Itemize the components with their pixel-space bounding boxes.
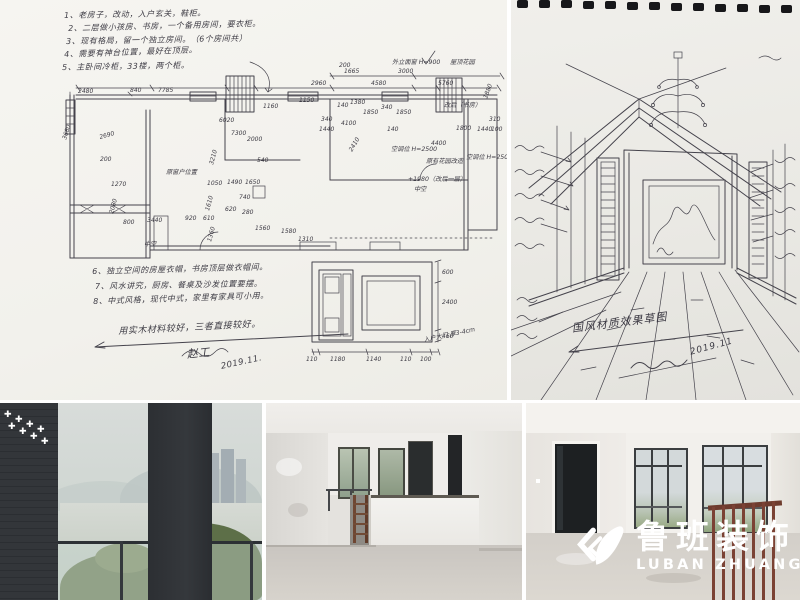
dimension-label: 1490: [227, 179, 242, 186]
logo-text-block: 鲁班装饰 LUBAN ZHUANGSHI: [636, 519, 800, 573]
garden-label: 原有花园改造: [426, 157, 464, 165]
brick-wall: [0, 403, 58, 600]
dimension-label: 800: [123, 219, 135, 226]
sparkle-decal: ✚: [41, 438, 49, 447]
sparkle-decal: ✚: [26, 421, 34, 430]
leaf-logo-icon: [576, 521, 626, 571]
dimension-label: 340: [321, 116, 333, 123]
level-label: +1980（改后一层）: [408, 175, 466, 183]
city-tower: [236, 459, 246, 505]
dimension-label: 280: [242, 209, 254, 216]
dimension-label: 1610: [204, 195, 215, 212]
perspective-drawing: [511, 0, 800, 400]
dimension-label: 1310: [298, 236, 313, 243]
logo-name-english: LUBAN ZHUANGSHI: [636, 557, 800, 573]
half-wall: [371, 495, 479, 551]
facade-label: 外立面窗 H=900: [392, 58, 440, 66]
spiral-binding: [517, 0, 792, 13]
dimension-label: 610: [203, 215, 215, 222]
dimension-label: 7300: [231, 130, 246, 137]
dimension-label: 2690: [99, 130, 116, 141]
designer-signature: 赵工: [186, 344, 211, 362]
sparkle-decal: ✚: [19, 428, 27, 437]
ladder-rung: [353, 533, 368, 535]
railing-post: [250, 541, 253, 600]
dimension-label: 6020: [219, 117, 234, 124]
window-mullion: [667, 450, 669, 523]
dimension-label: 140: [337, 102, 349, 109]
dimension-label: 1880: [482, 83, 494, 100]
dimension-label: 340: [381, 104, 393, 111]
door-depth: [557, 446, 563, 530]
dimension-label: 2960: [311, 80, 326, 87]
dimension-label: 920: [185, 215, 197, 222]
signature-strokes: [95, 334, 348, 357]
dimension-label: 1050: [207, 180, 222, 187]
dimension-label: 1160: [263, 103, 278, 110]
dimension-label: 1440: [319, 126, 334, 133]
feature-wall-and-artwork: [624, 150, 737, 270]
dimension-label: 1150: [299, 97, 314, 104]
note-line: 5、主卧间冷柜，33楼，两个柜。: [62, 60, 189, 73]
dimension-label: 2080: [108, 198, 119, 215]
sparkle-decal: ✚: [37, 426, 45, 435]
wood-floor: [511, 270, 799, 400]
switch-box: [536, 479, 540, 483]
railing-post: [120, 541, 123, 600]
dimension-label: 1270: [111, 181, 126, 188]
sparkle-decal: ✚: [4, 411, 12, 420]
city-tower: [221, 449, 234, 505]
study-label: 改后（书房）: [444, 101, 481, 109]
dimension-label: 100: [420, 356, 432, 363]
dimension-label: 2000: [247, 136, 262, 143]
perspective-sketch-panel: 国风材质效果草图 2019.11: [511, 0, 800, 400]
dimension-label: 600: [442, 269, 454, 276]
company-logo: 鲁班装饰 LUBAN ZHUANGSHI: [576, 519, 800, 573]
window-mullion: [651, 450, 653, 523]
floor-shadow-line: [266, 545, 376, 547]
right-wall-panels: [737, 144, 796, 304]
dimension-label: 110: [306, 356, 318, 363]
dimension-label: 840: [130, 87, 142, 94]
dimension-label: 1850: [363, 109, 378, 116]
wall-patch: [276, 458, 302, 476]
dark-doorway: [408, 441, 433, 497]
ceiling-lines: [529, 64, 781, 206]
back-window: [378, 448, 405, 499]
window-transom: [636, 465, 682, 467]
collage: 2480 840 7785 1665 3000 2960 4580 5760 2…: [0, 0, 800, 600]
dimension-label: 1800: [456, 125, 471, 132]
wall-patch: [288, 503, 308, 517]
dimension-label: 2480: [78, 88, 93, 95]
dimension-label: 1180: [330, 356, 345, 363]
dimension-label: 1580: [281, 228, 296, 235]
ladder-rung: [353, 503, 368, 505]
logo-name-chinese: 鲁班装饰: [636, 519, 800, 555]
photo-balcony-view: ✚ ✚ ✚ ✚ ✚ ✚ ✚ ✚: [0, 403, 262, 600]
elevation-detail: 600 2400 460 110 1180 1140 110 100: [306, 260, 457, 363]
dimension-label: 460: [442, 333, 454, 340]
dimension-label: 5760: [438, 80, 453, 87]
dimension-label: 540: [257, 157, 269, 164]
dimension-label: 1665: [344, 68, 359, 75]
concrete-pillar: [148, 403, 212, 600]
old-window-label: 原窗户位置: [166, 168, 198, 176]
floorplan-drawing: 2480 840 7785 1665 3000 2960 4580 5760 2…: [0, 0, 507, 400]
chandelier: [649, 52, 706, 128]
dimension-label: 3210: [208, 149, 219, 166]
skirting-shadow: [479, 548, 522, 551]
dimension-label: 1360: [206, 226, 217, 243]
dimension-label: 3680: [61, 124, 72, 141]
floorplan-sketch-panel: 2480 840 7785 1665 3000 2960 4580 5760 2…: [0, 0, 507, 400]
sparkle-decal: ✚: [30, 433, 38, 442]
back-window: [338, 447, 370, 499]
dimension-label: 2410: [348, 136, 362, 153]
ceiling: [526, 403, 800, 435]
dimension-label: 7785: [158, 87, 173, 94]
window-transom: [704, 465, 762, 467]
ladder-rung: [353, 513, 368, 515]
concrete-floor: [266, 545, 522, 600]
dimension-label: 3000: [398, 68, 413, 75]
dimension-label: 310: [489, 116, 501, 123]
ladder-rung: [353, 523, 368, 525]
dimension-label: 4580: [371, 80, 386, 87]
dimension-label: 1850: [396, 109, 411, 116]
dimension-label: 3440: [147, 217, 162, 224]
void-label: 中空: [414, 185, 427, 193]
floor-patch: [646, 573, 701, 583]
dimension-label: 110: [400, 356, 412, 363]
photo-interior-windows: 鲁班装饰 LUBAN ZHUANGSHI: [526, 403, 800, 600]
ac-label: 空调位 H=2500: [391, 145, 437, 153]
dimension-label: 100: [491, 126, 503, 133]
dimension-label: 620: [225, 206, 237, 213]
dimension-label: 1380: [350, 99, 365, 106]
dimension-label: 2400: [442, 299, 457, 306]
dimension-label: 1140: [366, 356, 381, 363]
roof-garden-label: 屋顶花园: [450, 58, 476, 66]
dimension-label: 140: [387, 126, 399, 133]
dark-doorway: [448, 435, 462, 495]
ac-label: 空调位 H=2500: [466, 153, 507, 161]
void-label: 中空: [144, 240, 157, 248]
sparkle-decal: ✚: [8, 423, 16, 432]
balcony-rail-line: [636, 506, 682, 508]
dimension-label: 740: [239, 194, 251, 201]
dimension-label: 4100: [341, 120, 356, 127]
dimension-label: 1560: [255, 225, 270, 232]
window-mullion: [352, 449, 354, 493]
photo-interior-stairwell: [266, 403, 522, 600]
dimension-label: 200: [100, 156, 112, 163]
sparkle-decal: ✚: [15, 416, 23, 425]
dimension-label: 1650: [245, 179, 260, 186]
safety-rail: [326, 489, 372, 491]
dimension-label: 200: [339, 62, 351, 69]
left-wall: [266, 433, 328, 548]
safety-rail-post: [328, 489, 330, 511]
